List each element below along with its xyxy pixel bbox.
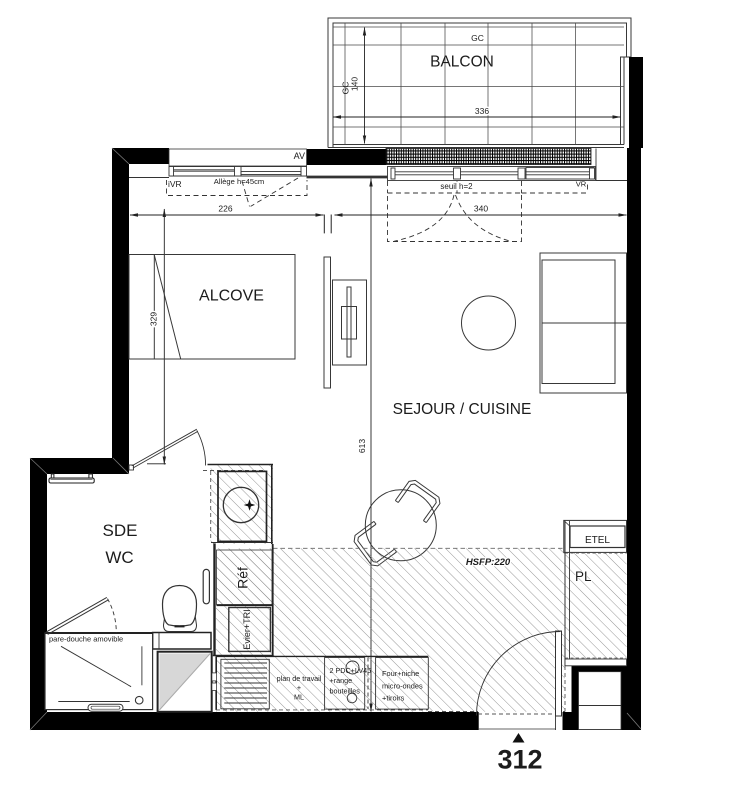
svg-text:Four+niche: Four+niche: [382, 669, 419, 678]
svg-text:SDE: SDE: [103, 521, 138, 540]
svg-text:Allège h=45cm: Allège h=45cm: [214, 177, 264, 186]
svg-text:140: 140: [350, 77, 360, 91]
svg-text:WC: WC: [105, 548, 133, 567]
svg-text:+tiroirs: +tiroirs: [382, 694, 405, 703]
svg-text:bouteilles: bouteilles: [330, 687, 361, 696]
svg-text:BALCON: BALCON: [430, 54, 494, 71]
svg-text:HSFP:220: HSFP:220: [466, 557, 511, 568]
svg-text:plan de travail: plan de travail: [277, 674, 322, 683]
svg-text:SEJOUR / CUISINE: SEJOUR / CUISINE: [393, 401, 532, 418]
svg-text:ML: ML: [294, 693, 304, 702]
svg-text:312: 312: [497, 745, 542, 775]
svg-text:ETEL: ETEL: [585, 535, 610, 546]
svg-text:329: 329: [149, 312, 159, 326]
svg-text:Evier+TRI: Evier+TRI: [242, 609, 252, 649]
svg-text:PL: PL: [575, 569, 592, 584]
svg-text:+range: +range: [330, 676, 353, 685]
svg-text:340: 340: [474, 204, 488, 214]
svg-text:VR: VR: [576, 180, 587, 189]
svg-text:GC: GC: [471, 33, 484, 43]
svg-text:613: 613: [357, 439, 367, 453]
svg-text:226: 226: [218, 204, 232, 214]
svg-text:micro-ondes: micro-ondes: [382, 682, 423, 691]
svg-text:AV: AV: [294, 151, 305, 161]
svg-text:ALCOVE: ALCOVE: [199, 288, 264, 305]
svg-text:iVR: iVR: [168, 179, 182, 189]
svg-text:+: +: [297, 683, 301, 692]
svg-text:336: 336: [475, 106, 489, 116]
svg-text:seuil h=2: seuil h=2: [440, 182, 473, 191]
svg-text:pare-douche amovible: pare-douche amovible: [49, 635, 123, 644]
svg-text:Réf: Réf: [235, 567, 251, 589]
svg-text:2 PDC+LV45: 2 PDC+LV45: [330, 666, 372, 675]
